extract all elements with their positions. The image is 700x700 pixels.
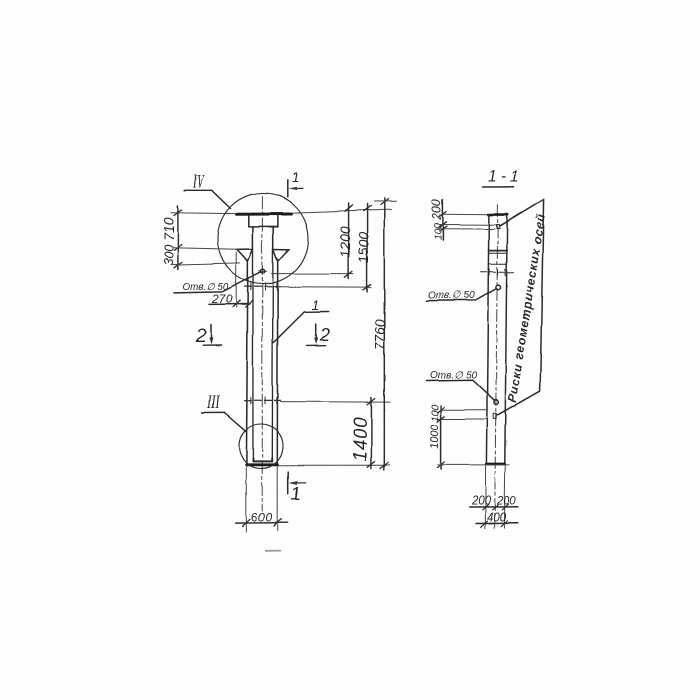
svg-text:1 - 1: 1 - 1 (488, 168, 519, 185)
svg-text:270: 270 (211, 292, 232, 306)
svg-text:1500: 1500 (356, 232, 372, 263)
svg-text:200: 200 (471, 496, 492, 508)
svg-text:Отв.∅ 50: Отв.∅ 50 (430, 371, 477, 382)
svg-text:300: 300 (162, 245, 176, 266)
svg-text:400: 400 (487, 512, 507, 524)
svg-text:600: 600 (251, 510, 273, 524)
svg-text:III: III (207, 392, 220, 414)
svg-text:Отв.∅ 50: Отв.∅ 50 (428, 290, 475, 301)
svg-text:200: 200 (430, 199, 444, 221)
svg-text:100: 100 (433, 223, 444, 240)
svg-text:200: 200 (496, 495, 517, 507)
svg-text:710: 710 (161, 217, 177, 241)
svg-text:7760: 7760 (372, 319, 388, 350)
svg-text:1: 1 (291, 484, 301, 504)
svg-text:1: 1 (292, 170, 300, 185)
svg-text:1: 1 (312, 297, 320, 313)
svg-text:1200: 1200 (337, 226, 353, 257)
svg-text:IV: IV (192, 171, 205, 193)
svg-text:100: 100 (430, 404, 441, 421)
svg-text:1000: 1000 (429, 423, 441, 448)
svg-text:2: 2 (195, 325, 207, 346)
svg-text:2: 2 (319, 324, 331, 345)
svg-text:1400: 1400 (351, 416, 372, 461)
svg-text:Отв.∅ 50: Отв.∅ 50 (183, 282, 229, 293)
